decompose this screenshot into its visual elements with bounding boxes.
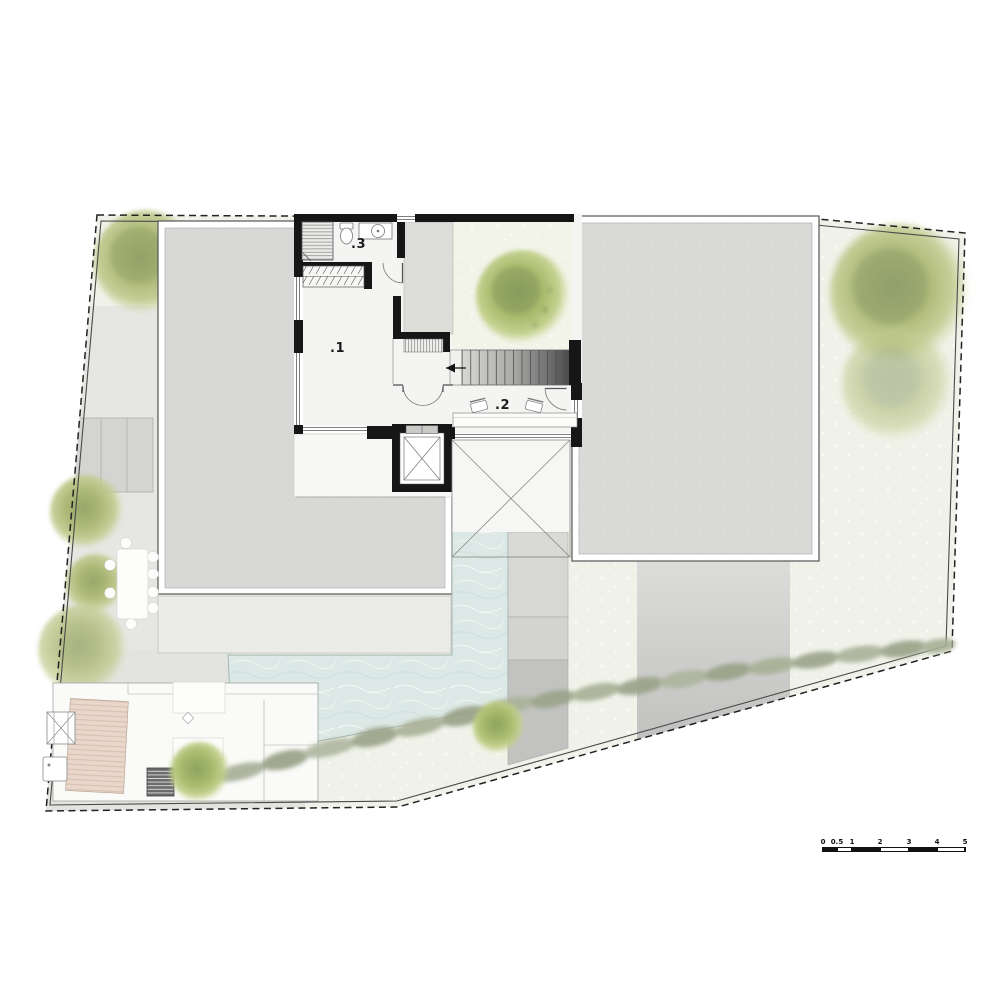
stair-closet	[404, 339, 443, 352]
scale-label-0: 0	[821, 838, 826, 846]
scale-label-1: 1	[850, 838, 855, 846]
scale-label-0-5: 0.5	[831, 838, 843, 846]
tree-bottom-left	[170, 742, 230, 802]
room-2-label: .2	[495, 398, 510, 413]
pool-terrace	[158, 596, 451, 653]
room-3-label: .3	[351, 237, 366, 252]
scale-bar: 0 0.5 1 2 3 4 5	[822, 838, 968, 856]
elevator	[392, 424, 452, 492]
side-table	[43, 757, 67, 781]
rear-path	[637, 561, 790, 740]
scale-label-5: 5	[963, 838, 968, 846]
wardrobe	[303, 266, 364, 287]
scale-seg	[823, 848, 837, 851]
hall-desk	[453, 413, 577, 427]
scale-label-3: 3	[907, 838, 912, 846]
tree-left-lower	[38, 605, 128, 695]
courtyard-tree	[476, 250, 570, 344]
site-plan-canvas: .1 .2 .3 0 0.5 1 2 3 4 5	[0, 0, 1000, 1000]
scale-bar-segments	[822, 847, 966, 852]
scale-bar-labels: 0 0.5 1 2 3 4 5	[822, 838, 968, 846]
scale-label-4: 4	[935, 838, 940, 846]
tree-walkway	[473, 701, 525, 753]
scale-seg	[909, 848, 938, 851]
tree-left-upper	[50, 475, 124, 549]
scale-seg	[837, 848, 851, 851]
scale-seg	[937, 848, 965, 851]
bbq-table	[47, 712, 75, 744]
room-1-label: .1	[330, 341, 345, 356]
tree-top-right-faded	[842, 329, 954, 441]
staircase	[446, 350, 573, 385]
scale-seg	[852, 848, 881, 851]
shower	[302, 222, 333, 260]
right-roof	[572, 216, 819, 561]
roof-slab-piece	[404, 222, 453, 334]
scale-seg	[880, 848, 909, 851]
floor-grate	[147, 768, 174, 796]
scale-label-2: 2	[878, 838, 883, 846]
